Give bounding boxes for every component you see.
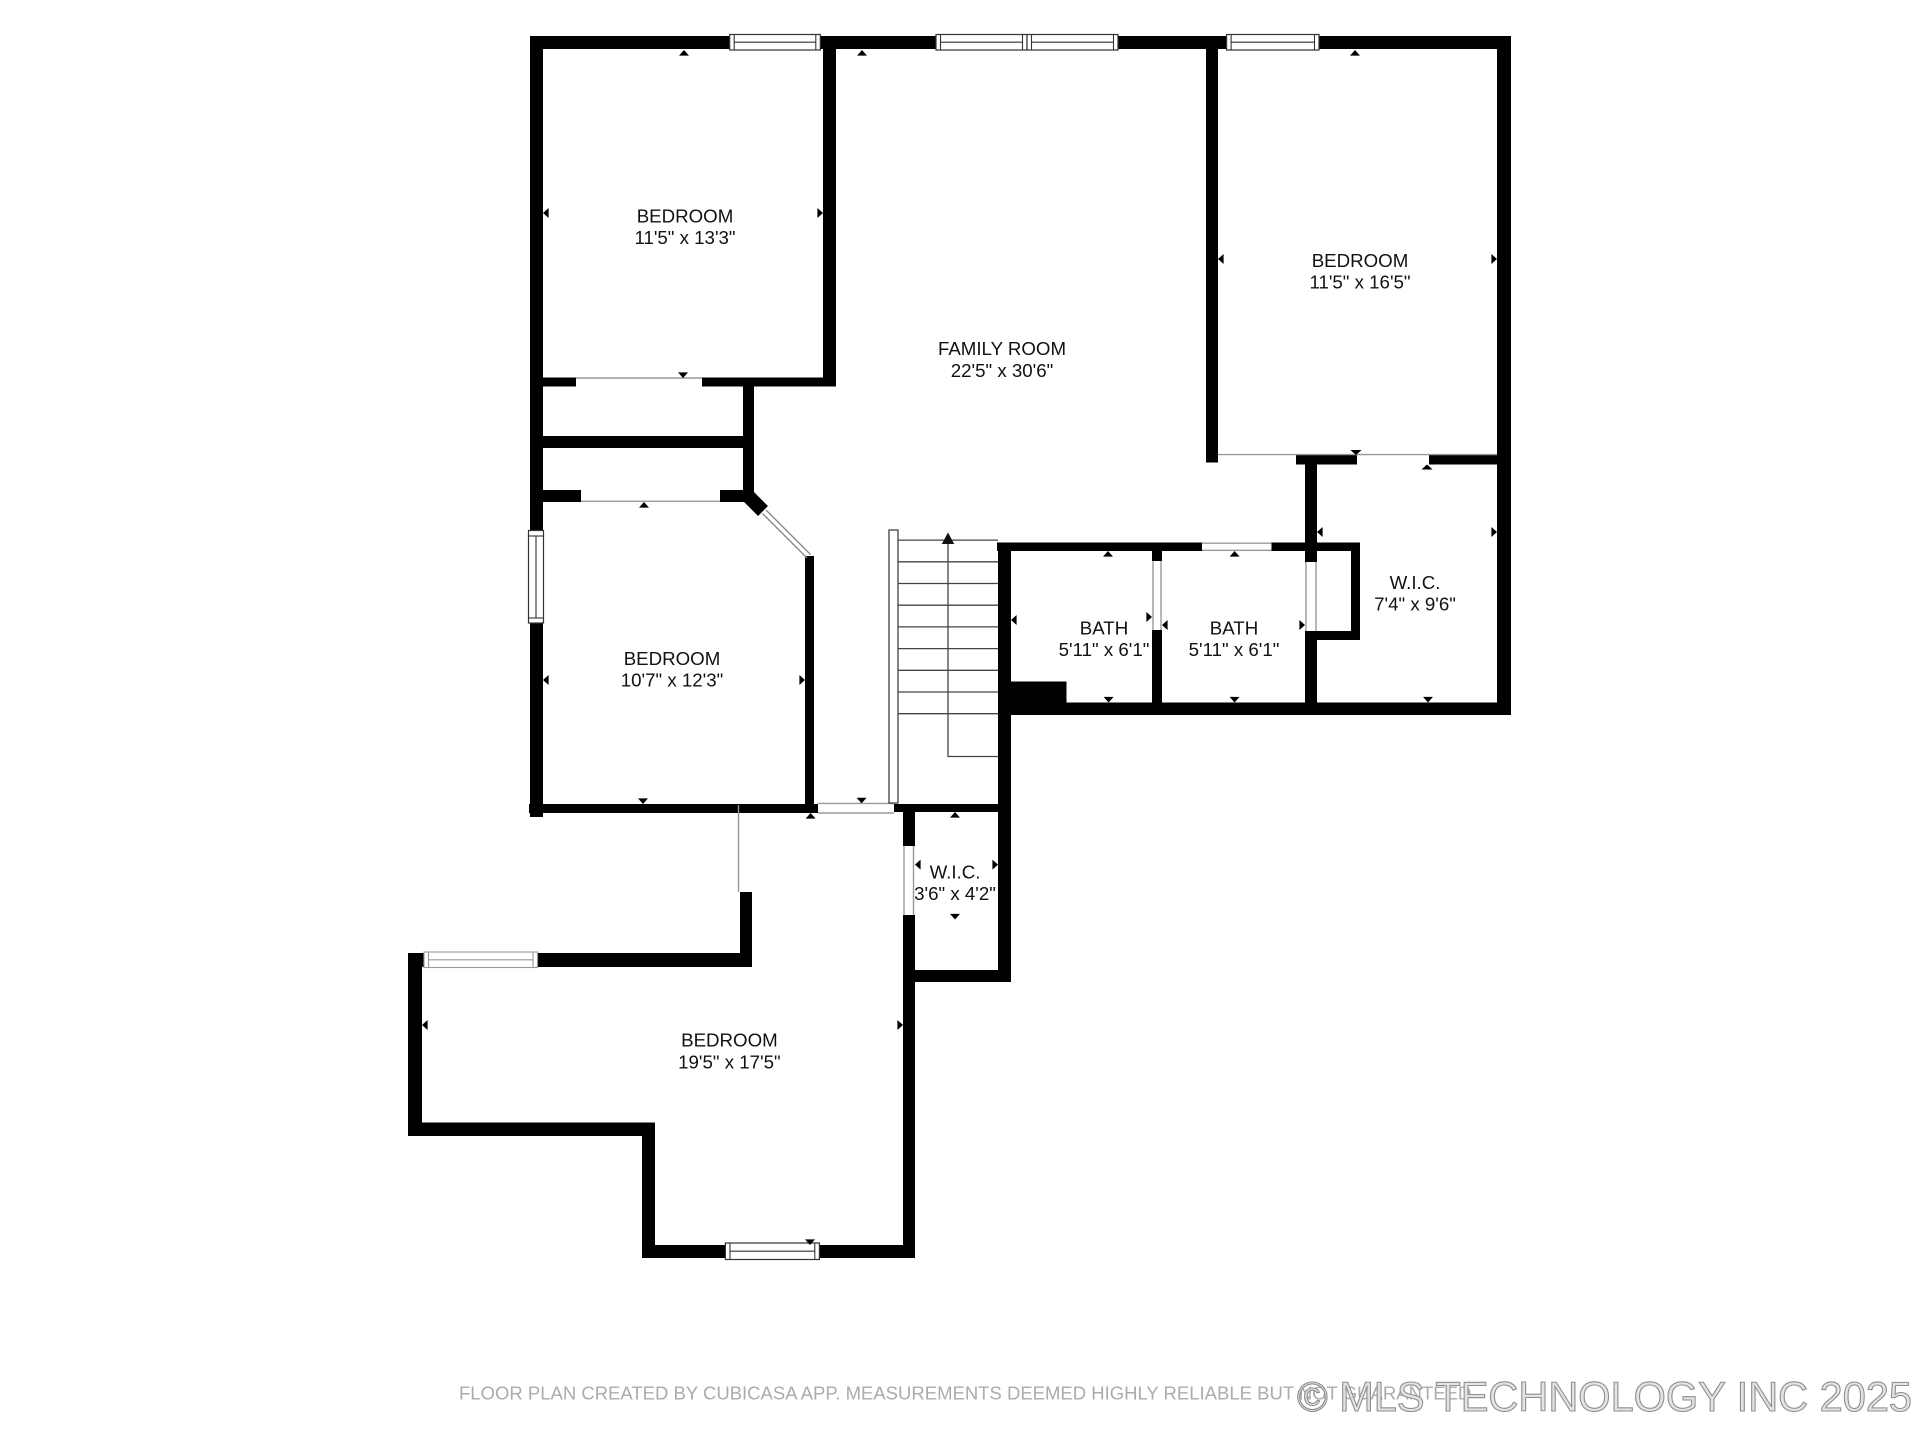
svg-text:BATH: BATH — [1210, 618, 1258, 639]
svg-text:11'5" x 16'5": 11'5" x 16'5" — [1309, 272, 1410, 293]
svg-text:5'11" x 6'1": 5'11" x 6'1" — [1059, 639, 1150, 660]
svg-text:10'7" x 12'3": 10'7" x 12'3" — [621, 670, 724, 691]
svg-text:22'5" x 30'6": 22'5" x 30'6" — [951, 360, 1054, 381]
svg-text:W.I.C.: W.I.C. — [1390, 572, 1441, 593]
svg-text:BEDROOM: BEDROOM — [624, 648, 721, 669]
svg-text:BEDROOM: BEDROOM — [637, 206, 734, 227]
svg-text:BEDROOM: BEDROOM — [681, 1030, 778, 1051]
svg-text:W.I.C.: W.I.C. — [930, 862, 981, 883]
svg-text:BATH: BATH — [1080, 618, 1128, 639]
svg-text:5'11" x 6'1": 5'11" x 6'1" — [1189, 639, 1280, 660]
svg-text:7'4" x 9'6": 7'4" x 9'6" — [1374, 594, 1456, 615]
svg-text:FAMILY ROOM: FAMILY ROOM — [938, 338, 1066, 359]
svg-text:19'5" x 17'5": 19'5" x 17'5" — [678, 1051, 781, 1072]
svg-text:11'5" x 13'3": 11'5" x 13'3" — [634, 227, 735, 248]
svg-text:© MLS TECHNOLOGY INC 2025: © MLS TECHNOLOGY INC 2025 — [1297, 1373, 1912, 1420]
svg-text:3'6" x 4'2": 3'6" x 4'2" — [914, 883, 996, 904]
svg-text:BEDROOM: BEDROOM — [1312, 250, 1409, 271]
